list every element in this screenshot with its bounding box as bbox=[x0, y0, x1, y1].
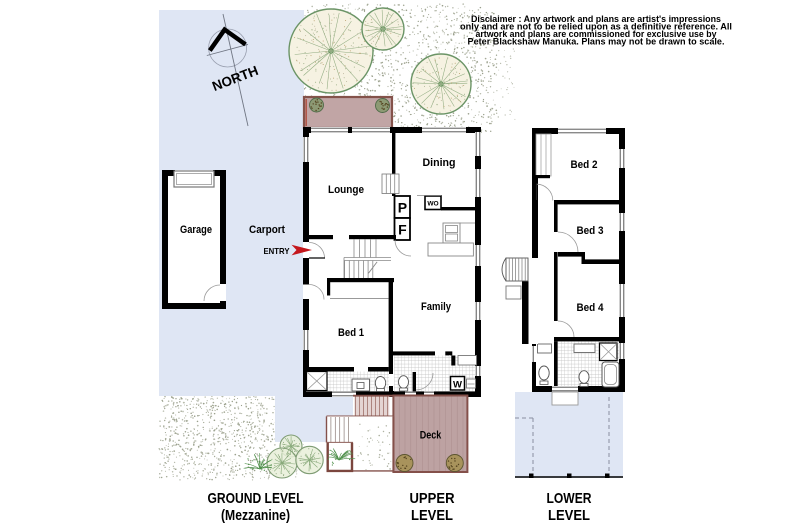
svg-text:Family: Family bbox=[421, 301, 452, 313]
svg-text:LEVEL: LEVEL bbox=[411, 508, 453, 524]
svg-text:Bed 1: Bed 1 bbox=[338, 327, 364, 339]
svg-text:Deck: Deck bbox=[420, 430, 442, 442]
svg-text:UPPER: UPPER bbox=[410, 491, 455, 507]
svg-text:WO: WO bbox=[427, 201, 438, 208]
svg-text:P: P bbox=[398, 200, 407, 216]
svg-text:Bed 4: Bed 4 bbox=[577, 302, 605, 314]
svg-text:NORTH: NORTH bbox=[210, 63, 260, 94]
svg-text:F: F bbox=[398, 222, 407, 238]
svg-text:W: W bbox=[453, 380, 462, 391]
svg-text:GROUND LEVEL: GROUND LEVEL bbox=[208, 491, 304, 507]
svg-text:Bed 2: Bed 2 bbox=[571, 159, 598, 171]
svg-text:ENTRY: ENTRY bbox=[264, 247, 291, 256]
svg-text:LOWER: LOWER bbox=[547, 491, 592, 507]
svg-text:Dining: Dining bbox=[423, 157, 456, 169]
svg-text:Peter Blackshaw Manuka. Plans: Peter Blackshaw Manuka. Plans may not be… bbox=[468, 37, 725, 47]
svg-text:Lounge: Lounge bbox=[328, 184, 364, 196]
svg-text:Garage: Garage bbox=[180, 224, 212, 236]
svg-text:Bed 3: Bed 3 bbox=[577, 225, 604, 237]
svg-text:Carport: Carport bbox=[249, 224, 285, 236]
svg-text:LEVEL: LEVEL bbox=[548, 508, 590, 524]
svg-text:(Mezzanine): (Mezzanine) bbox=[221, 508, 290, 524]
